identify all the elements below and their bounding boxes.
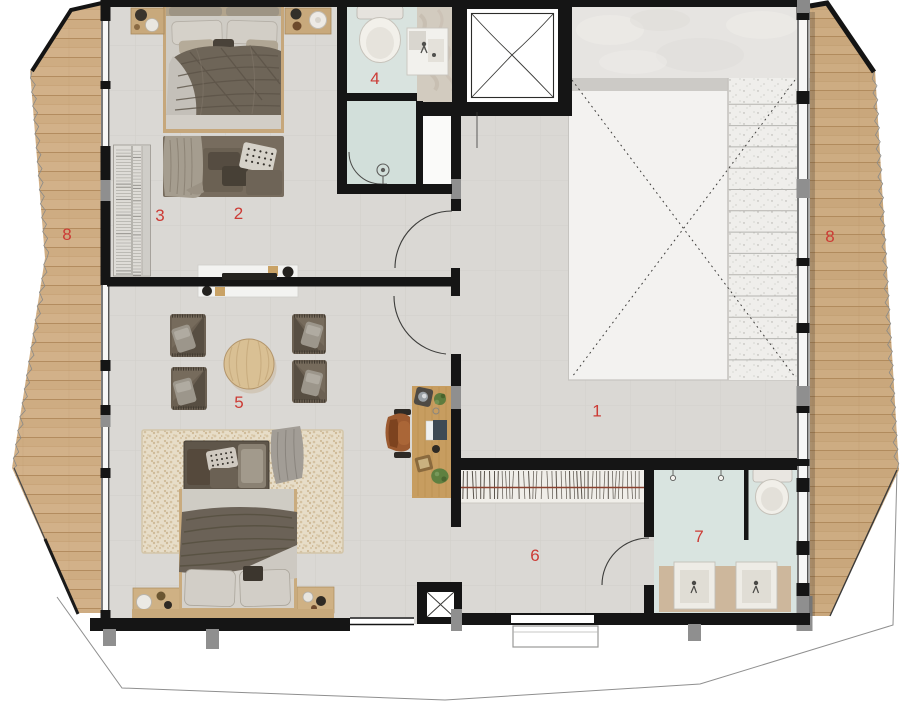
svg-text:2: 2 (234, 204, 243, 223)
svg-text:8: 8 (62, 225, 71, 244)
svg-text:3: 3 (155, 206, 164, 225)
svg-text:6: 6 (530, 546, 539, 565)
svg-text:1: 1 (592, 402, 601, 421)
svg-text:8: 8 (825, 227, 834, 246)
svg-text:7: 7 (694, 527, 703, 546)
svg-text:4: 4 (370, 69, 379, 88)
svg-text:5: 5 (234, 393, 243, 412)
